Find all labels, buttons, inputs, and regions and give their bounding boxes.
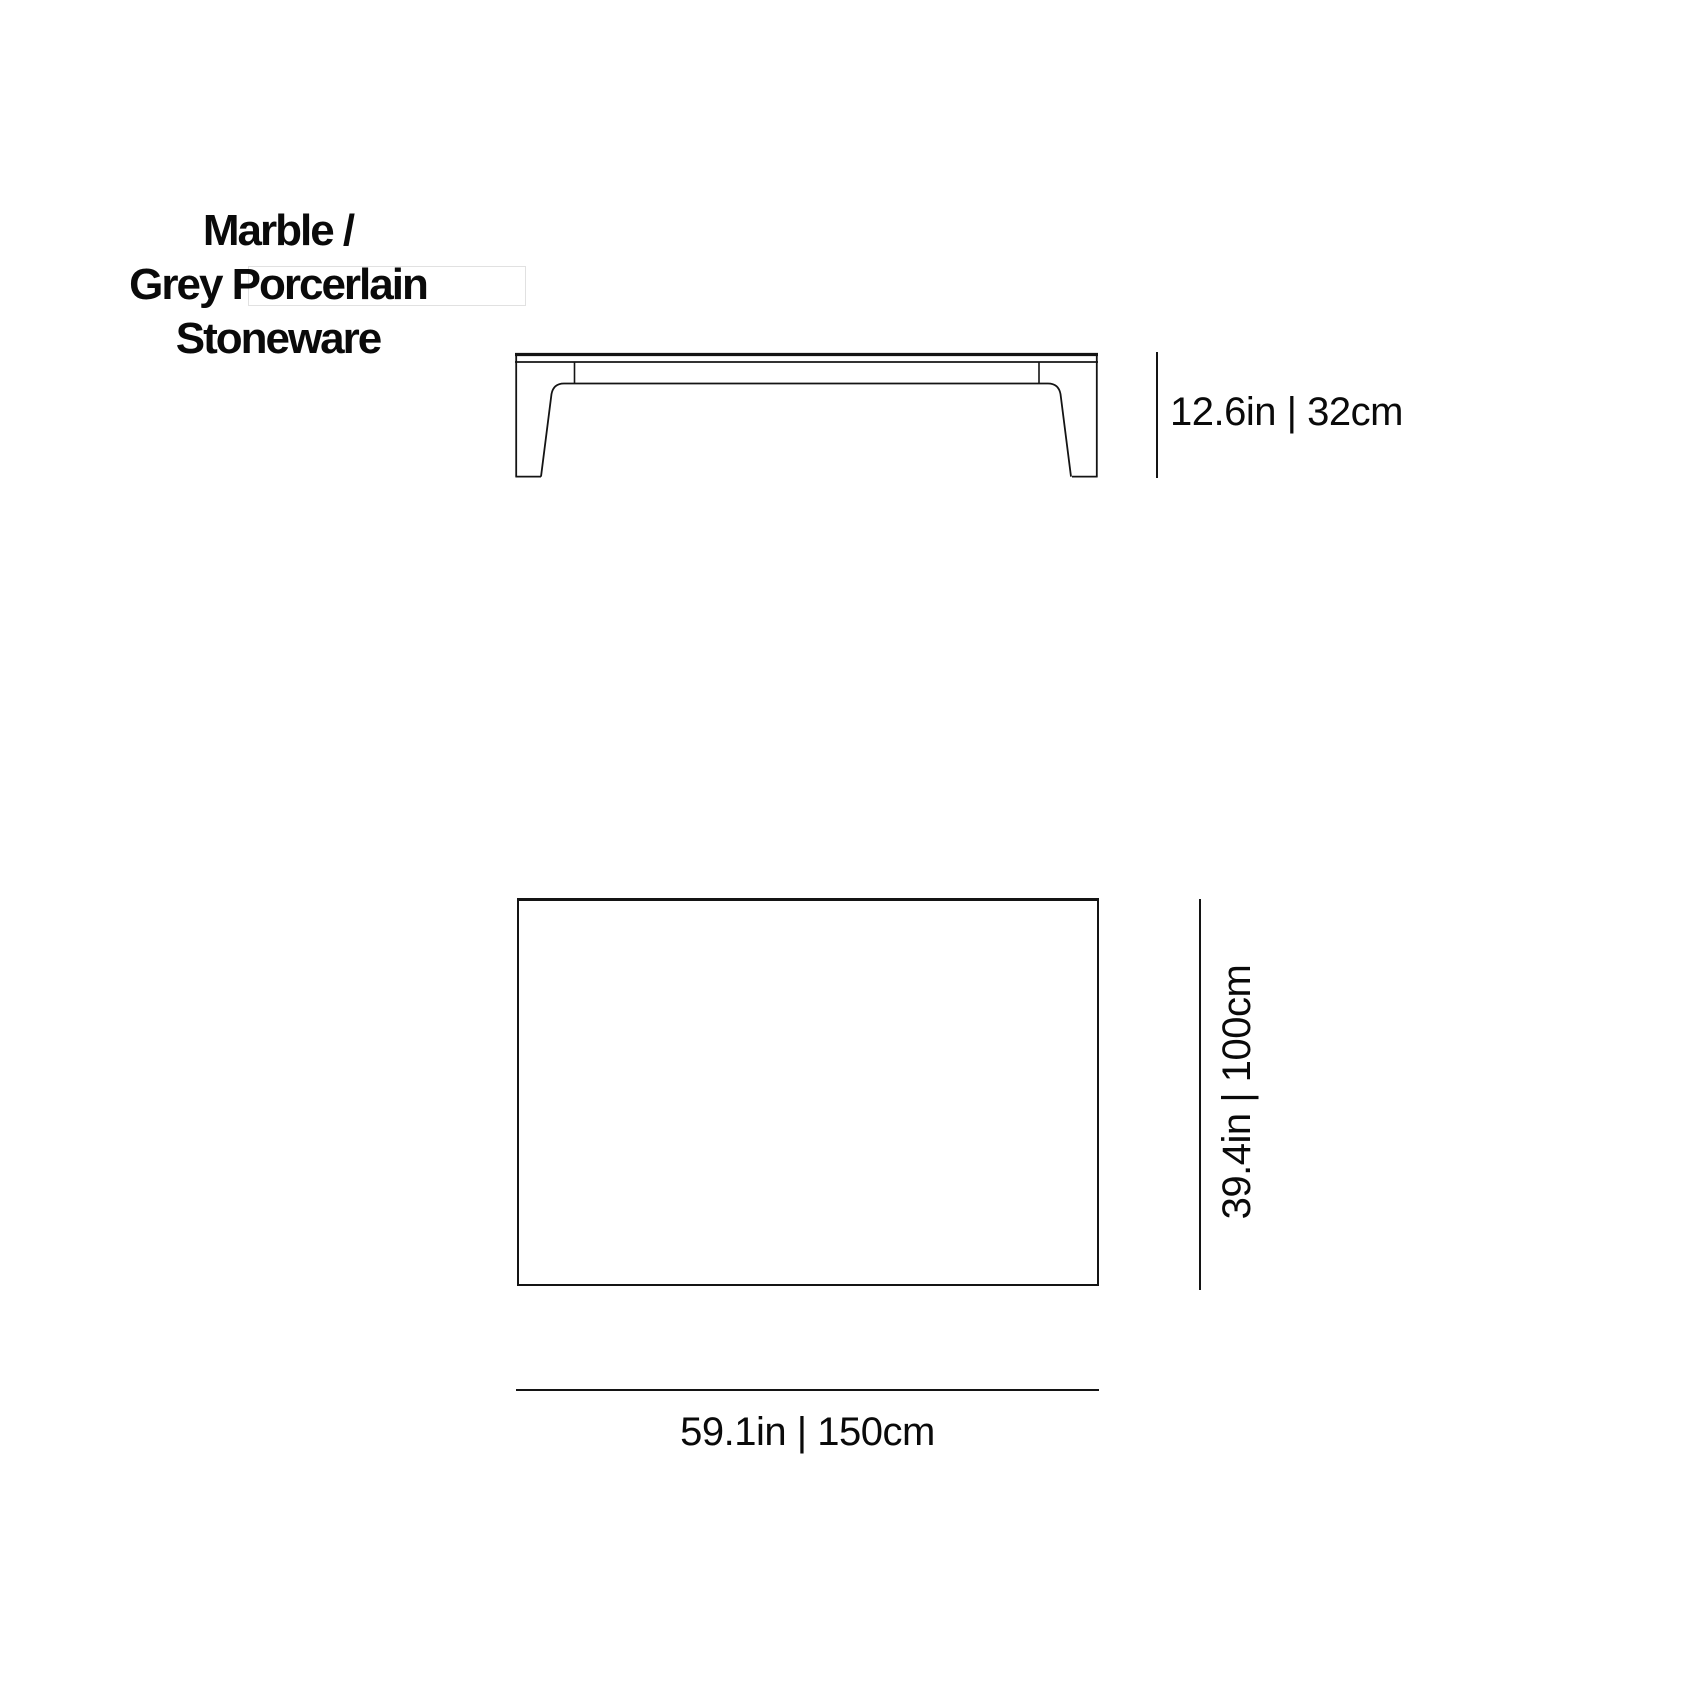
dimension-diagram-page: Marble / Grey Porcerlain Stoneware 12.6i… bbox=[0, 0, 1700, 1700]
width-dimension-label: 59.1in | 150cm bbox=[680, 1410, 935, 1454]
width-dimension-line bbox=[516, 1389, 1099, 1391]
title-line-1: Marble / bbox=[26, 204, 530, 258]
page-title: Marble / Grey Porcerlain Stoneware bbox=[26, 204, 530, 366]
width-dimension-label-wrap: 59.1in | 150cm bbox=[516, 1410, 1099, 1454]
height-dimension-label: 12.6in | 32cm bbox=[1170, 390, 1403, 434]
table-apron-and-inner-leg-edges bbox=[541, 384, 1071, 477]
tabletop-slab bbox=[515, 355, 1098, 363]
depth-dimension-line bbox=[1199, 899, 1201, 1290]
height-dimension-line bbox=[1156, 352, 1158, 478]
front-elevation-drawing bbox=[500, 345, 1120, 490]
depth-dimension-label: 39.4in | 100cm bbox=[1215, 965, 1259, 1220]
top-view-rectangle bbox=[517, 898, 1099, 1286]
title-line-2: Grey Porcerlain Stoneware bbox=[26, 258, 530, 366]
